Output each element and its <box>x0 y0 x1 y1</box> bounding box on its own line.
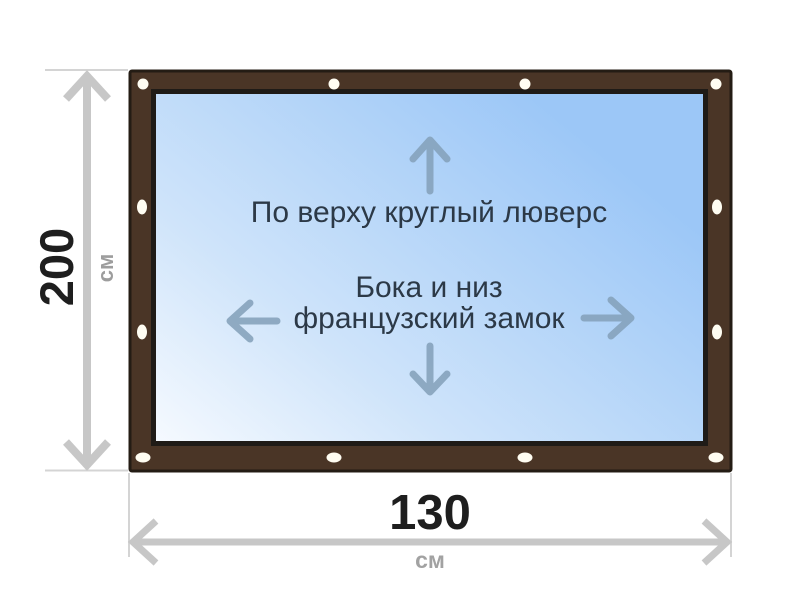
grommet-bottom-2 <box>327 453 342 463</box>
top-grommet-note: По верху круглый люверс <box>179 196 679 230</box>
height-dimension-value: 200 <box>27 167 87 367</box>
grommet-bottom-1 <box>136 453 151 463</box>
width-dimension-unit: см <box>330 549 530 572</box>
grommet-bottom-4 <box>709 453 724 463</box>
grommet-left-1 <box>137 200 147 215</box>
grommet-top-1 <box>138 79 149 90</box>
sides-lock-note: Бока и низ французский замок <box>179 272 679 334</box>
curtain-size-diagram: По верху круглый люверс Бока и низ франц… <box>0 0 800 600</box>
grommet-top-4 <box>711 79 722 90</box>
sides-lock-note-line1: Бока и низ <box>179 272 679 303</box>
height-dimension-unit: см <box>91 218 121 318</box>
grommet-bottom-3 <box>518 453 533 463</box>
grommet-right-1 <box>712 200 722 215</box>
width-dimension-value: 130 <box>330 488 530 538</box>
grommet-top-3 <box>520 79 531 90</box>
grommet-left-2 <box>137 325 147 340</box>
grommet-top-2 <box>329 79 340 90</box>
grommet-right-2 <box>712 325 722 340</box>
sides-lock-note-line2: французский замок <box>179 303 679 334</box>
